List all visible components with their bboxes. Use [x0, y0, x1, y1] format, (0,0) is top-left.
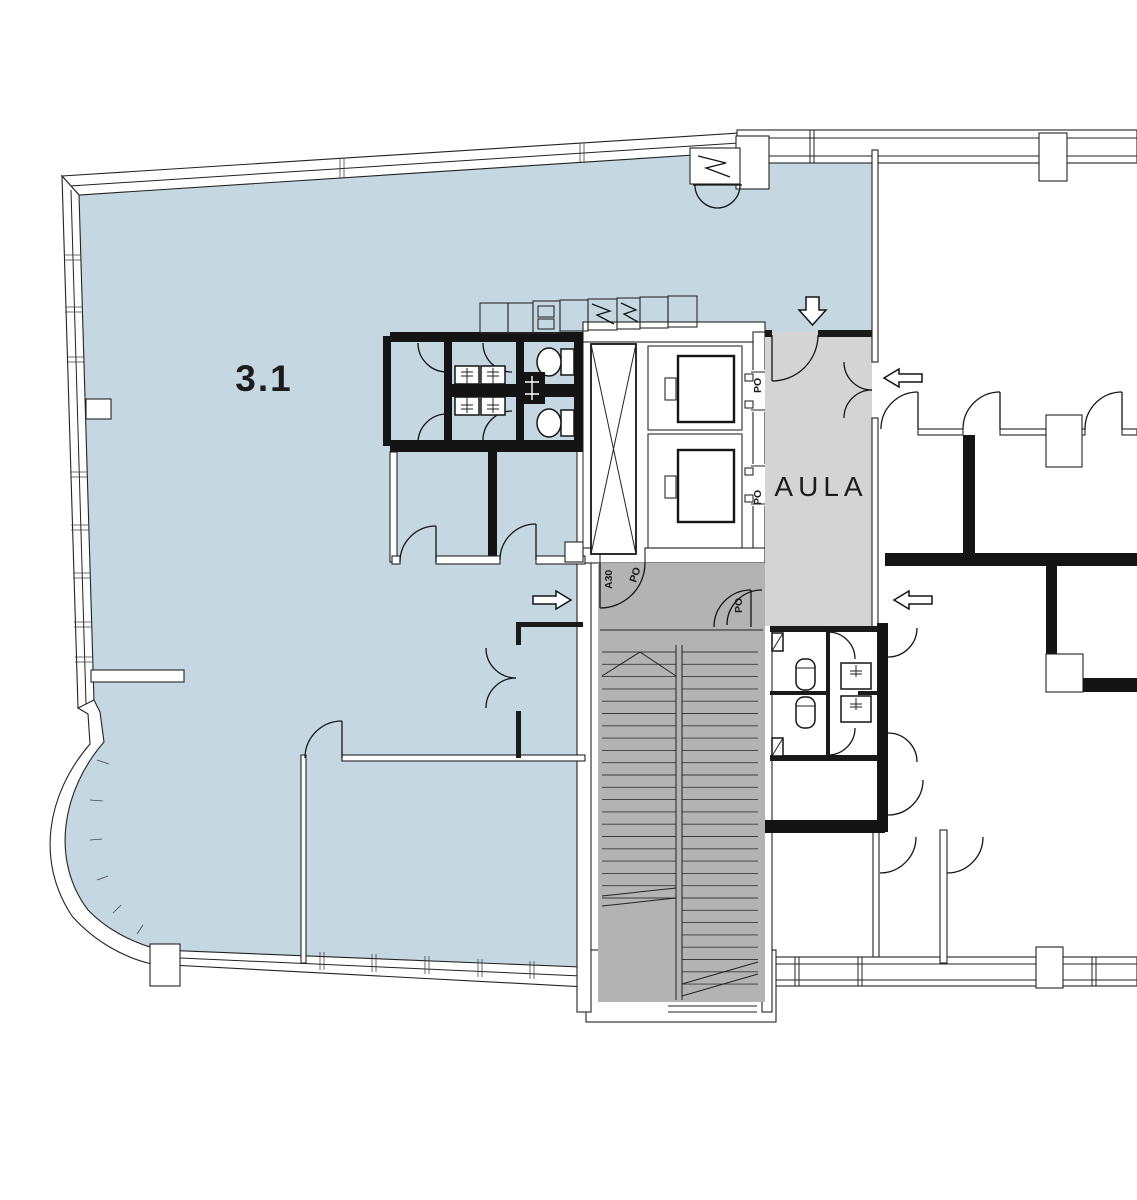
right-wing-doors: [880, 628, 983, 873]
room-divider-thick: [488, 452, 497, 562]
arrow-left-aula: [884, 369, 922, 387]
stairwell: [598, 563, 765, 1012]
floor-plan-svg: 3.1 AULA PO PO A30 PO PO: [0, 0, 1137, 1200]
column-top-right: [1039, 133, 1067, 181]
toilet-1: [537, 348, 574, 376]
wall-band-bottom-right: [770, 957, 1137, 986]
column-bottom-left: [150, 944, 180, 986]
wc-r-door-top: [828, 632, 855, 659]
po-label-elevator-1: PO: [752, 378, 764, 393]
column-corridor: [1046, 415, 1082, 467]
corridor-wall-seg-3: [1122, 429, 1137, 435]
thin-wall-sw: [873, 832, 879, 957]
elevator-right-wall: [753, 332, 765, 563]
wc-block-right-wing: [770, 626, 878, 761]
wall-stub-left: [91, 670, 184, 682]
column-room-corner: [565, 542, 583, 562]
elevator-bottom-wall-b: [645, 548, 765, 563]
wc-r-door-bottom: [828, 728, 855, 755]
elevator-top-wall: [583, 322, 765, 342]
elevator-core: [583, 322, 765, 563]
column-junction: [736, 136, 769, 189]
thin-wall-se: [940, 830, 947, 963]
radiator-1: [772, 633, 783, 651]
toilet-3: [796, 659, 815, 690]
wall-bottom-room: [765, 820, 885, 833]
corridor-doors: [881, 392, 1122, 429]
sink-right-1: [841, 663, 871, 689]
room-left-wall: [390, 452, 397, 562]
wall-south-of-aula: [877, 623, 888, 832]
po-label-stairs: PO: [733, 598, 745, 613]
toilet-2: [537, 409, 574, 437]
wall-band-top-right: [737, 130, 1137, 163]
pilaster-left-wall: [86, 399, 111, 419]
radiator-2: [772, 738, 783, 756]
aula-label: AULA: [774, 471, 867, 502]
east-boundary-wall-upper: [872, 150, 878, 362]
column-mid-right: [1046, 654, 1083, 692]
stair-flight-left: [602, 652, 676, 898]
column-bottom-right: [1036, 947, 1063, 988]
toilet-4: [796, 697, 815, 728]
shaft-x-brace: [591, 344, 636, 554]
po-label-elevator-2: PO: [752, 490, 764, 505]
corridor-wall-seg-1: [918, 429, 963, 435]
partition-bottom-room-top: [342, 755, 585, 761]
a30-label-vestibule: A30: [603, 570, 615, 589]
arrow-left-stairs: [894, 591, 932, 609]
sink-right-2: [841, 696, 871, 722]
sink-unit-dark: [519, 372, 545, 404]
east-boundary-wall-lower: [872, 418, 878, 627]
unit-label: 3.1: [235, 358, 292, 399]
